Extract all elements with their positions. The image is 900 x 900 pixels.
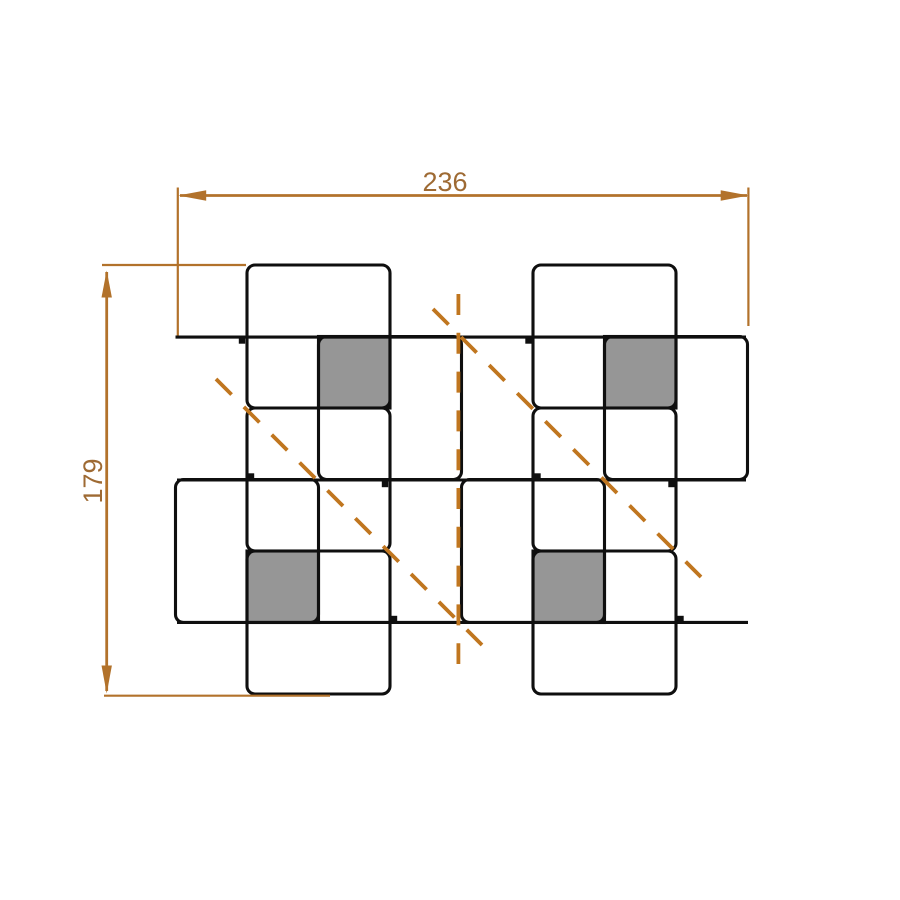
svg-text:236: 236 (422, 167, 467, 197)
svg-text:179: 179 (78, 458, 108, 503)
